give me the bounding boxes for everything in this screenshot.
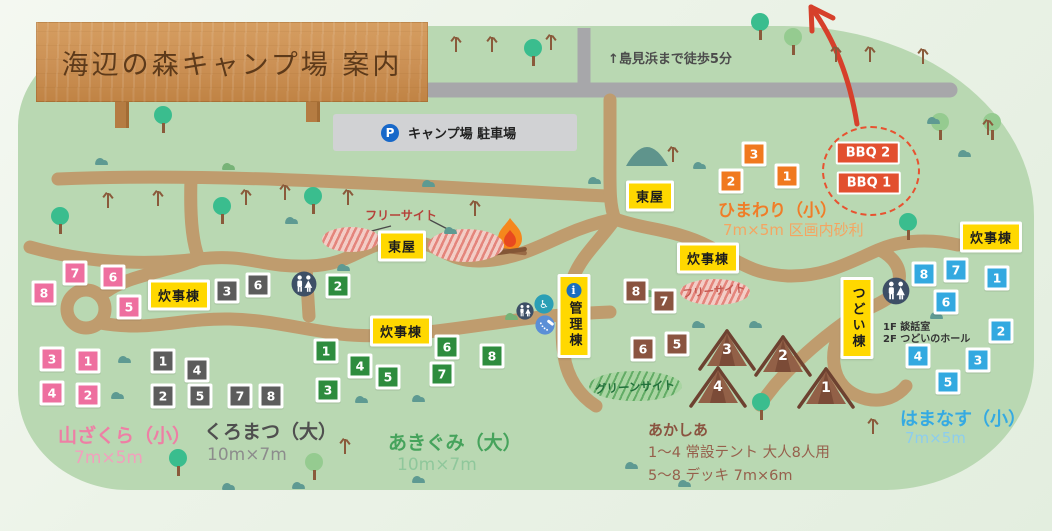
site-hamanasu-3: 3 (966, 348, 991, 373)
tree-icon (342, 187, 354, 205)
site-akashia_deck-7: 7 (652, 289, 677, 314)
bush-icon (222, 483, 232, 490)
bush-icon (625, 462, 635, 469)
campground-map: 海辺の森キャンプ場 案内 P キャンプ場 駐車場 ↑島見浜まで徒歩5分 フリーサ… (0, 0, 1052, 531)
site-yamazakura-4: 4 (40, 381, 65, 406)
site-akigumi-7: 7 (430, 362, 455, 387)
tree-icon (469, 198, 481, 216)
site-yamazakura-6: 6 (101, 265, 126, 290)
tent-icon: 4 (687, 364, 749, 408)
area-yamazakura-name: 山ざくら（小） (58, 421, 191, 448)
site-himawari-3: 3 (742, 142, 767, 167)
site-akigumi-1: 1 (314, 339, 339, 364)
free-site-zone (428, 229, 504, 262)
tree-icon (752, 393, 770, 420)
area-akashia-note1: 1～4 常設テント 大人8人用 (648, 441, 830, 462)
free-site-label: フリーサイト (365, 207, 437, 224)
shower-icon (535, 315, 555, 339)
site-akigumi-3: 3 (316, 378, 341, 403)
tree-icon (667, 144, 679, 162)
tree-icon (169, 449, 187, 476)
bush-icon (355, 396, 365, 403)
area-akashia-note2: 5～8 デッキ 7m×6m (648, 464, 793, 485)
tree-icon (864, 44, 876, 62)
svg-text:3: 3 (722, 342, 732, 358)
area-kuromatsu-size: 10m×7m (207, 445, 287, 465)
site-akashia_deck-5: 5 (665, 332, 690, 357)
site-yamazakura-3: 3 (40, 347, 65, 372)
restroom-icon (291, 271, 317, 301)
area-hamanasu-size: 7m×5m (905, 429, 966, 447)
parking-area: P キャンプ場 駐車場 (333, 114, 577, 151)
site-kuromatsu-8: 8 (259, 384, 284, 409)
area-kuromatsu-name: くろまつ（大） (204, 417, 337, 444)
site-akigumi-4: 4 (348, 354, 373, 379)
site-akigumi-2: 2 (326, 274, 351, 299)
facility-label: 東屋 (378, 231, 426, 262)
area-akashia-name: あかしあ (648, 419, 708, 440)
bush-icon (95, 158, 105, 165)
facility-label: 東屋 (626, 181, 674, 212)
tree-icon (899, 213, 917, 240)
svg-text:4: 4 (713, 379, 723, 395)
bush-icon (693, 162, 703, 169)
tree-icon (51, 207, 69, 234)
site-himawari-1: 1 (775, 164, 800, 189)
svg-text:1: 1 (821, 380, 831, 396)
tree-icon (304, 187, 322, 214)
sign-leg (115, 98, 129, 128)
tree-icon (486, 34, 498, 52)
site-kuromatsu-5: 5 (188, 384, 213, 409)
area-akigumi-name: あきぐみ（大） (388, 428, 522, 455)
site-hamanasu-7: 7 (944, 258, 969, 283)
tree-icon (102, 190, 114, 208)
facility-label: 炊事棟 (960, 222, 1022, 253)
site-hamanasu-5: 5 (936, 370, 961, 395)
bush-icon (412, 395, 422, 402)
bush-icon (958, 150, 968, 157)
bush-icon (588, 177, 598, 184)
bush-icon (118, 356, 128, 363)
site-kuromatsu-7: 7 (228, 384, 253, 409)
area-yamazakura-size: 7m×5m (74, 448, 143, 468)
site-himawari-2: 2 (719, 169, 744, 194)
tree-icon (982, 117, 994, 135)
bush-icon (337, 264, 347, 271)
bush-icon (927, 117, 937, 124)
site-yamazakura-7: 7 (63, 261, 88, 286)
site-hamanasu-2: 2 (989, 319, 1014, 344)
facility-label: つどい棟 (841, 277, 874, 359)
site-akashia_deck-8: 8 (624, 279, 649, 304)
tree-icon (279, 182, 291, 200)
tree-icon (545, 32, 557, 50)
area-himawari-size: 7m×5m 区画内砂利 (723, 219, 864, 240)
site-yamazakura-5: 5 (117, 295, 142, 320)
restroom-icon (882, 277, 910, 309)
site-hamanasu-4: 4 (906, 344, 931, 369)
bush-icon (444, 227, 454, 234)
area-himawari-name: ひまわり（小） (718, 196, 837, 221)
tree-icon (830, 44, 842, 62)
beach-direction-note: ↑島見浜まで徒歩5分 (608, 48, 732, 67)
site-yamazakura-1: 1 (76, 349, 101, 374)
site-hamanasu-6: 6 (934, 290, 959, 315)
parking-icon: P (381, 124, 399, 142)
area-akigumi-size: 10m×7m (397, 455, 477, 475)
tree-icon (240, 187, 252, 205)
site-akashia_deck-6: 6 (631, 337, 656, 362)
bush-icon (292, 482, 302, 489)
tree-icon (154, 106, 172, 133)
site-kuromatsu-4: 4 (185, 358, 210, 383)
site-akigumi-8: 8 (480, 344, 505, 369)
facility-label: 炊事棟 (148, 280, 210, 311)
tree-icon (305, 453, 323, 480)
svg-text:♿: ♿ (539, 298, 549, 311)
bush-icon (505, 313, 515, 320)
map-title-sign: 海辺の森キャンプ場 案内 (36, 22, 428, 102)
site-hamanasu-1: 1 (985, 266, 1010, 291)
site-yamazakura-2: 2 (76, 383, 101, 408)
bush-icon (422, 180, 432, 187)
mountain-icon (626, 147, 668, 166)
restroom-icon (516, 302, 534, 324)
site-akigumi-5: 5 (376, 365, 401, 390)
site-kuromatsu-6: 6 (246, 273, 271, 298)
tree-icon (784, 28, 802, 55)
facility-label: i管理棟 (558, 274, 591, 358)
site-kuromatsu-2: 2 (151, 384, 176, 409)
svg-text:2: 2 (778, 348, 788, 364)
site-kuromatsu-1: 1 (151, 349, 176, 374)
info-icon: i (567, 283, 582, 298)
bush-icon (412, 476, 422, 483)
tree-icon (339, 436, 351, 454)
bush-icon (222, 163, 232, 170)
bbq-1-label: BBQ 1 (837, 172, 901, 195)
site-yamazakura-8: 8 (32, 281, 57, 306)
site-akigumi-6: 6 (435, 335, 460, 360)
map-title: 海辺の森キャンプ場 案内 (62, 43, 403, 82)
tree-icon (867, 416, 879, 434)
facility-label: 炊事棟 (677, 243, 739, 274)
bush-icon (285, 217, 295, 224)
facility-label: 炊事棟 (370, 316, 432, 347)
free-site-zone (322, 227, 380, 252)
tent-icon: 1 (795, 365, 857, 409)
bbq-2-label: BBQ 2 (836, 142, 900, 165)
tree-icon (751, 13, 769, 40)
area-hamanasu-name: はまなす（小） (900, 405, 1026, 431)
site-kuromatsu-3: 3 (215, 279, 240, 304)
tree-icon (917, 46, 929, 64)
tree-icon (450, 34, 462, 52)
tree-icon (213, 197, 231, 224)
tree-icon (152, 188, 164, 206)
tree-icon (524, 39, 542, 66)
parking-label: キャンプ場 駐車場 (408, 123, 516, 142)
site-hamanasu-8: 8 (912, 262, 937, 287)
bush-icon (111, 392, 121, 399)
